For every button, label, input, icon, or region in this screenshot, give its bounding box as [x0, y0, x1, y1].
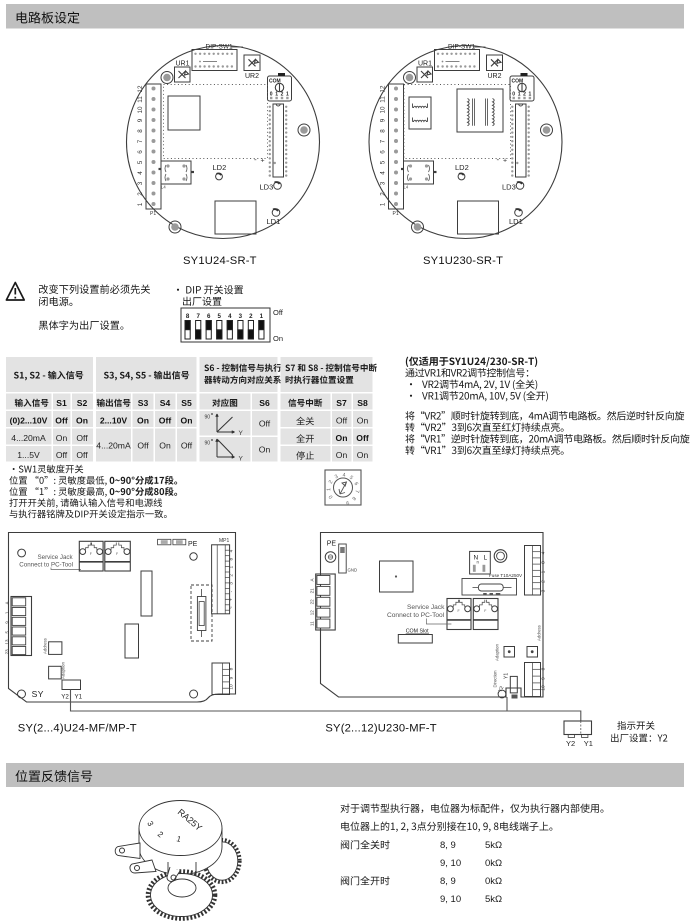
svg-text:UR1: UR1 — [176, 61, 190, 68]
svg-text:L4: L4 — [404, 185, 409, 190]
svg-text:UR2: UR2 — [488, 73, 502, 80]
svg-text:8: 8 — [541, 561, 547, 564]
svg-text:Off: Off — [181, 441, 193, 451]
svg-text:2: 2 — [541, 580, 547, 583]
svg-text:11: 11 — [310, 621, 315, 626]
svg-text:3: 3 — [228, 582, 234, 585]
svg-text:9, 10: 9, 10 — [440, 894, 461, 905]
svg-text:0: 0 — [270, 92, 273, 98]
svg-text:F: F — [90, 552, 92, 556]
svg-text:Off: Off — [56, 450, 68, 460]
svg-text:LD1: LD1 — [267, 217, 281, 226]
svg-text:Adaption: Adaption — [61, 661, 66, 679]
svg-text:On: On — [357, 416, 369, 426]
svg-text:1: 1 — [286, 92, 289, 98]
svg-text:21: 21 — [310, 588, 315, 594]
svg-text:SY(2...4)U24-MF/MP-T: SY(2...4)U24-MF/MP-T — [18, 723, 137, 735]
svg-text:2: 2 — [523, 92, 526, 98]
svg-text:4...20mA: 4...20mA — [96, 441, 131, 451]
svg-text:UR1: UR1 — [418, 61, 432, 68]
svg-text:2: 2 — [380, 192, 387, 196]
svg-text:L4: L4 — [161, 185, 166, 190]
svg-text:8: 8 — [380, 129, 387, 133]
svg-text:23: 23 — [5, 649, 10, 655]
svg-text:~: ~ — [229, 606, 234, 609]
svg-text:12: 12 — [380, 85, 387, 93]
svg-text:1: 1 — [137, 202, 144, 206]
svg-text:5: 5 — [380, 160, 387, 164]
svg-text:10: 10 — [137, 106, 144, 114]
svg-text:6: 6 — [380, 150, 387, 154]
svg-text:5: 5 — [217, 313, 221, 320]
svg-text:5kΩ: 5kΩ — [485, 840, 502, 851]
svg-text:Service Jack: Service Jack — [407, 604, 445, 611]
svg-text:4: 4 — [137, 171, 144, 175]
svg-text:2: 2 — [137, 192, 144, 196]
svg-text:SY(2...12)U230-MF-T: SY(2...12)U230-MF-T — [325, 723, 436, 735]
svg-text:4: 4 — [228, 549, 234, 552]
svg-text:LD2: LD2 — [455, 163, 469, 172]
svg-text:Y: Y — [239, 430, 244, 437]
svg-text:7: 7 — [196, 313, 200, 320]
svg-text:-: - — [497, 155, 500, 164]
svg-text:LD3: LD3 — [260, 183, 274, 192]
svg-text:4: 4 — [228, 313, 232, 320]
svg-text:Off: Off — [55, 416, 68, 426]
svg-text:On: On — [159, 441, 171, 451]
svg-text:S6: S6 — [259, 398, 270, 408]
svg-text:8: 8 — [228, 557, 234, 560]
svg-text:9: 9 — [137, 118, 144, 122]
svg-text:-: - — [254, 155, 257, 164]
svg-text:0: 0 — [512, 92, 515, 98]
svg-text:On: On — [76, 416, 88, 426]
svg-text:5kΩ: 5kΩ — [485, 894, 502, 905]
svg-text:On: On — [259, 445, 271, 455]
svg-text:13: 13 — [5, 639, 10, 645]
svg-text:Address: Address — [537, 625, 542, 641]
svg-text:S5: S5 — [181, 398, 192, 408]
svg-text:12: 12 — [137, 85, 144, 93]
svg-text:Off: Off — [259, 419, 271, 429]
svg-text:Y: Y — [239, 456, 244, 463]
svg-text:Y1: Y1 — [75, 694, 83, 701]
svg-text:On: On — [357, 450, 369, 460]
svg-text:2: 2 — [228, 574, 234, 577]
svg-text:1: 1 — [326, 488, 332, 491]
svg-text:SY: SY — [32, 689, 44, 699]
svg-text:Off: Off — [76, 433, 88, 443]
svg-text:F: F — [484, 609, 486, 613]
svg-text:LD3: LD3 — [502, 183, 516, 192]
svg-text:Off: Off — [273, 308, 284, 317]
svg-text:Adaption: Adaption — [495, 643, 500, 661]
svg-text:7: 7 — [137, 139, 144, 143]
svg-text:90: 90 — [205, 415, 211, 421]
svg-text:6: 6 — [207, 313, 211, 320]
svg-text:4...20mA: 4...20mA — [11, 433, 46, 443]
svg-text:90: 90 — [205, 441, 211, 447]
svg-text:Service Jack: Service Jack — [38, 554, 74, 561]
svg-text:6: 6 — [137, 150, 144, 154]
svg-text:A: A — [5, 601, 10, 604]
svg-text:UR2: UR2 — [245, 73, 259, 80]
svg-text:Off: Off — [356, 433, 369, 443]
svg-text:P1: P1 — [150, 211, 156, 217]
svg-text:PE: PE — [327, 541, 337, 548]
svg-text:2: 2 — [249, 313, 253, 320]
svg-text:S4: S4 — [160, 398, 171, 408]
svg-text:GND: GND — [348, 568, 358, 573]
svg-text:7: 7 — [380, 139, 387, 143]
svg-text:F: F — [116, 552, 118, 556]
svg-text:8, 9: 8, 9 — [440, 840, 456, 851]
svg-text:3: 3 — [239, 313, 243, 320]
svg-text:9: 9 — [380, 118, 387, 122]
svg-text:4: 4 — [342, 472, 345, 478]
svg-text:Connect to PC-Tool: Connect to PC-Tool — [387, 612, 445, 619]
svg-text:5: 5 — [137, 160, 144, 164]
svg-text:1...5V: 1...5V — [17, 450, 40, 460]
svg-text:Off: Off — [76, 450, 88, 460]
svg-text:9: 9 — [541, 677, 547, 680]
svg-text:S1: S1 — [56, 398, 67, 408]
svg-text:On: On — [336, 450, 348, 460]
svg-text:10: 10 — [541, 685, 547, 691]
svg-text:1: 1 — [541, 570, 547, 573]
svg-text:Y1: Y1 — [504, 673, 510, 679]
svg-text:Direction: Direction — [493, 670, 498, 688]
svg-text:1: 1 — [260, 313, 264, 320]
svg-text:1: 1 — [529, 92, 532, 98]
svg-text:Off: Off — [137, 441, 149, 451]
svg-text:9: 9 — [229, 676, 235, 679]
svg-text:On: On — [56, 433, 68, 443]
svg-text:On: On — [181, 416, 193, 426]
svg-text:3: 3 — [380, 181, 387, 185]
svg-text:9, 10: 9, 10 — [440, 858, 461, 869]
svg-text:Off: Off — [159, 416, 172, 426]
svg-text:10: 10 — [380, 106, 387, 114]
svg-text:1: 1 — [518, 92, 521, 98]
svg-text:Y1: Y1 — [584, 739, 593, 748]
svg-text:On: On — [273, 334, 283, 343]
svg-text:1: 1 — [380, 202, 387, 206]
svg-text:S7: S7 — [336, 398, 347, 408]
svg-text:(0)2...10V: (0)2...10V — [10, 416, 48, 426]
svg-text:4: 4 — [541, 551, 547, 554]
svg-text:8, 9: 8, 9 — [440, 876, 456, 887]
svg-text:8: 8 — [229, 667, 235, 670]
svg-text:11: 11 — [380, 96, 387, 103]
svg-text:8: 8 — [541, 667, 547, 670]
svg-text:Y2: Y2 — [61, 694, 69, 701]
svg-text:+: + — [229, 598, 234, 601]
svg-text:10: 10 — [229, 684, 235, 690]
svg-text:On: On — [336, 433, 348, 443]
svg-text:8: 8 — [137, 129, 144, 133]
svg-text:PE: PE — [188, 541, 198, 548]
svg-text:4: 4 — [380, 171, 387, 175]
svg-text:S2: S2 — [77, 398, 88, 408]
svg-text:On: On — [137, 416, 149, 426]
svg-text:S8: S8 — [357, 398, 368, 408]
svg-text:1: 1 — [228, 566, 234, 569]
svg-text:22: 22 — [310, 599, 315, 605]
svg-text:SY1U230-SR-T: SY1U230-SR-T — [423, 255, 503, 267]
svg-text:3: 3 — [541, 589, 547, 592]
svg-text:Fuse T10A250V: Fuse T10A250V — [489, 573, 523, 578]
svg-text:F: F — [458, 609, 460, 613]
svg-text:S3: S3 — [138, 398, 149, 408]
svg-text:A: A — [310, 578, 315, 581]
svg-text:SY1U24-SR-T: SY1U24-SR-T — [183, 255, 257, 267]
svg-text:1: 1 — [275, 92, 278, 98]
svg-text:MP1: MP1 — [219, 538, 230, 544]
svg-text:12: 12 — [310, 610, 315, 616]
svg-text:0kΩ: 0kΩ — [485, 876, 502, 887]
svg-text:3: 3 — [137, 181, 144, 185]
svg-text:Y2: Y2 — [566, 739, 575, 748]
svg-text:LD2: LD2 — [213, 163, 227, 172]
svg-text:L: L — [484, 555, 488, 562]
svg-text:2...10V: 2...10V — [100, 416, 128, 426]
svg-text:0kΩ: 0kΩ — [485, 858, 502, 869]
svg-text:11: 11 — [137, 96, 144, 103]
svg-text:P1: P1 — [393, 211, 399, 217]
svg-text:LD1: LD1 — [509, 217, 523, 226]
svg-text:2: 2 — [281, 92, 284, 98]
svg-text:Off: Off — [336, 416, 348, 426]
svg-text:Connect to PC-Tool: Connect to PC-Tool — [19, 562, 73, 569]
svg-text:8: 8 — [186, 313, 190, 320]
svg-text:Address: Address — [43, 638, 48, 654]
